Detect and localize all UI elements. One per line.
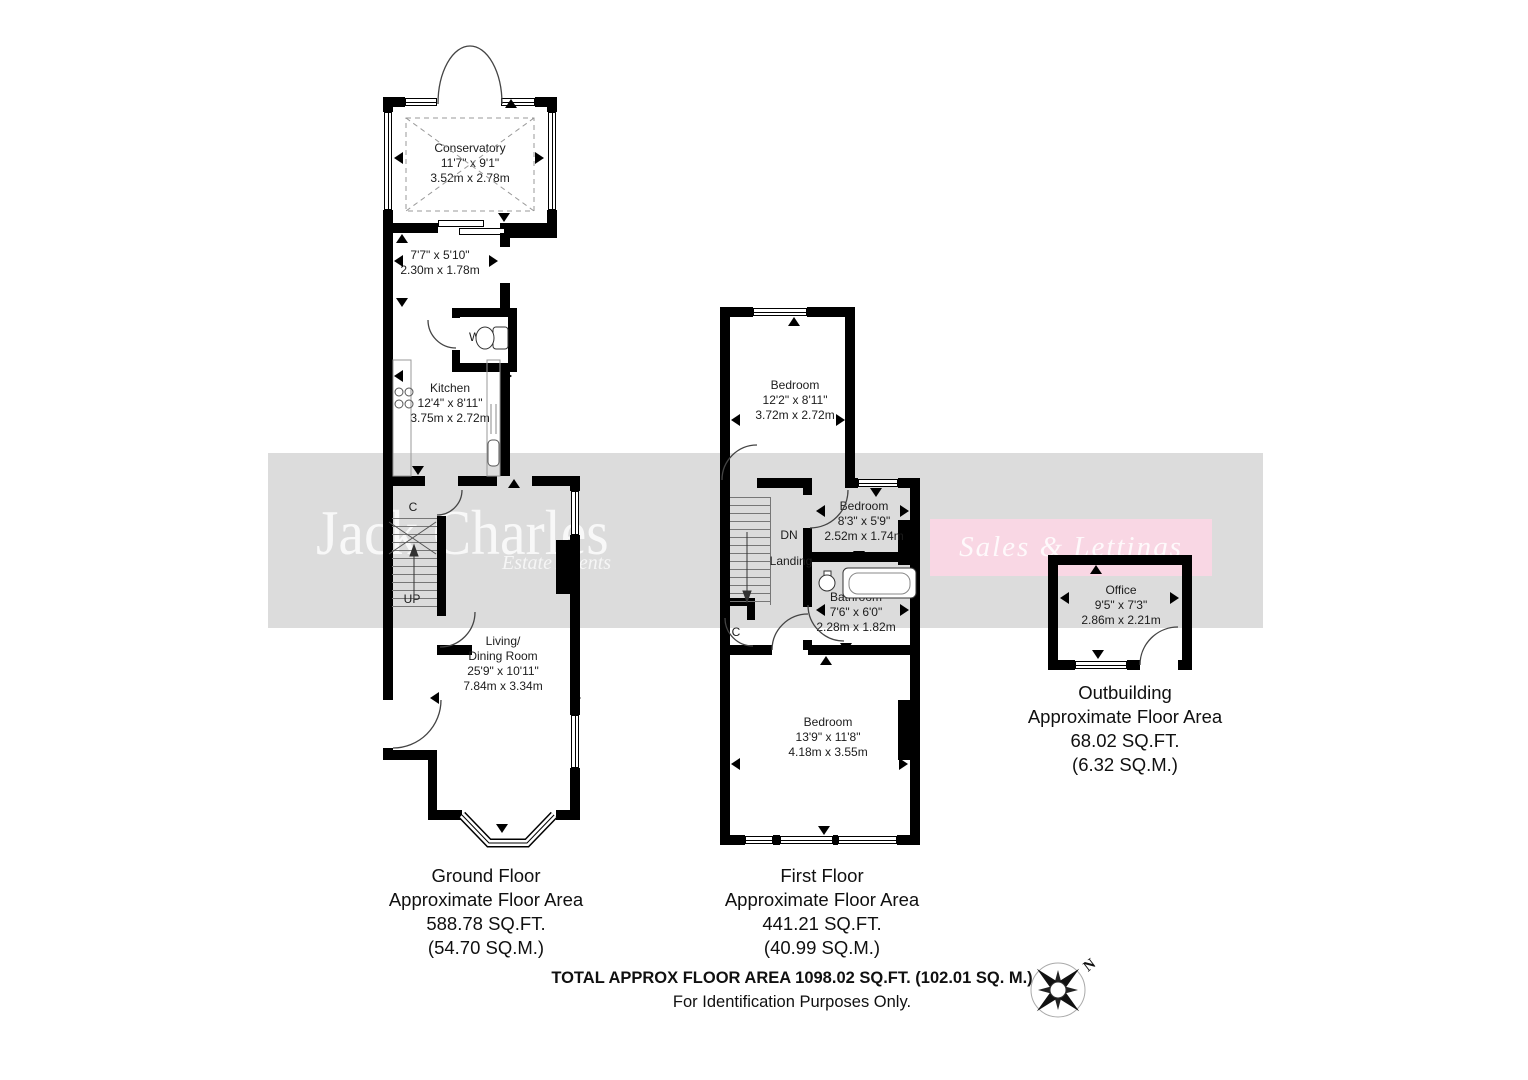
compass-rose: N: [1031, 956, 1099, 1017]
opening-marker: [489, 255, 498, 267]
opening-marker: [840, 643, 852, 652]
opening-marker: [816, 505, 825, 517]
wall: [910, 478, 920, 520]
opening-marker: [900, 505, 909, 517]
opening-marker: [498, 213, 510, 222]
window: [858, 479, 898, 487]
door-arc: [1140, 627, 1178, 665]
opening-marker: [731, 414, 740, 426]
wall: [910, 760, 920, 845]
wall: [570, 768, 580, 820]
wall: [845, 478, 858, 488]
compass-north-label: N: [1081, 956, 1100, 975]
opening-marker: [496, 824, 508, 833]
wall: [500, 233, 510, 247]
opening-marker: [394, 255, 403, 267]
opening-marker: [1092, 650, 1104, 659]
opening-marker: [508, 479, 520, 488]
opening-marker: [430, 692, 439, 704]
wall: [910, 565, 920, 700]
wall: [500, 283, 510, 308]
opening-marker: [853, 551, 865, 560]
wall: [428, 810, 462, 820]
door-arc: [393, 700, 441, 748]
opening-marker: [731, 758, 740, 770]
opening-marker: [1170, 592, 1179, 604]
ground-floor-caption: Ground Floor Approximate Floor Area 588.…: [389, 864, 583, 960]
wall: [383, 476, 425, 486]
opening-marker: [535, 152, 544, 164]
first-floor-caption: First Floor Approximate Floor Area 441.2…: [725, 864, 919, 960]
opening-marker: [870, 488, 882, 497]
wall: [720, 645, 772, 655]
floorplan-page: Sales & Lettings Jack Charles Estate Age…: [0, 0, 1528, 1080]
wall: [1048, 660, 1075, 670]
wall: [897, 835, 920, 845]
room-label-conservatory: Conservatory 11'7" x 9'1" 3.52m x 2.78m: [430, 141, 509, 186]
room-label-office: Office 9'5" x 7'3" 2.86m x 2.21m: [1081, 583, 1160, 628]
wall: [1048, 555, 1058, 670]
window: [753, 308, 807, 316]
window: [780, 836, 833, 844]
opening-marker: [412, 466, 424, 475]
stairs-dn-label: DN: [780, 528, 797, 542]
room-label-bedroom-middle: Bedroom 8'3" x 5'9" 2.52m x 1.74m: [824, 499, 903, 544]
door-arc: [428, 320, 456, 348]
cupboard-label: C: [732, 625, 741, 639]
opening-marker: [788, 317, 800, 326]
wall: [803, 488, 812, 495]
window: [405, 98, 437, 106]
room-label-kitchen: Kitchen 12'4" x 8'11" 3.75m x 2.72m: [410, 381, 489, 426]
wall: [458, 476, 497, 486]
chimney-breast: [898, 700, 920, 760]
wall: [1048, 555, 1192, 565]
staircase: [730, 497, 770, 605]
french-doors: [438, 46, 502, 104]
opening-marker: [396, 234, 408, 243]
opening-marker: [394, 370, 403, 382]
sales-lettings-banner: Sales & Lettings: [930, 519, 1212, 576]
room-label-wc: WC: [469, 330, 489, 344]
landing-label: Landing: [770, 554, 813, 568]
wall: [1182, 555, 1192, 670]
patio-door: [438, 220, 484, 227]
patio-door: [459, 228, 505, 235]
opening-marker: [836, 414, 845, 426]
wall: [757, 478, 812, 488]
room-label-hall: 7'7" x 5'10" 2.30m x 1.78m: [400, 248, 479, 278]
wall: [808, 645, 920, 655]
stair-edge: [770, 497, 771, 605]
cupboard-label: C: [409, 500, 418, 514]
wall: [570, 476, 580, 491]
wall: [383, 223, 393, 700]
stairs-up-label: UP: [404, 592, 421, 606]
wall: [720, 835, 745, 845]
window: [745, 836, 773, 844]
wall: [773, 835, 780, 845]
window: [571, 491, 579, 535]
opening-marker: [394, 152, 403, 164]
window: [838, 836, 897, 844]
wall: [1127, 660, 1140, 670]
room-label-bathroom: Bathroom 7'6" x 6'0" 2.28m x 1.82m: [816, 590, 895, 635]
wall: [500, 372, 510, 476]
opening-marker: [503, 370, 512, 382]
banner-text: Sales & Lettings: [930, 519, 1212, 576]
opening-marker: [396, 298, 408, 307]
wall: [845, 307, 855, 480]
window: [548, 112, 556, 210]
opening-marker: [820, 656, 832, 665]
opening-marker: [1060, 592, 1069, 604]
wall: [383, 97, 393, 112]
opening-marker: [816, 604, 825, 616]
bay-window: [462, 815, 554, 843]
wall: [437, 516, 446, 616]
wall: [452, 308, 460, 318]
opening-marker: [572, 692, 581, 704]
chimney-breast: [556, 540, 580, 594]
wall: [803, 562, 812, 607]
window: [571, 715, 579, 768]
opening-marker: [1090, 565, 1102, 574]
window: [1075, 661, 1127, 669]
room-label-bedroom-front: Bedroom 13'9" x 11'8" 4.18m x 3.55m: [788, 715, 867, 760]
wall: [720, 307, 730, 845]
opening-marker: [818, 826, 830, 835]
opening-marker: [899, 758, 908, 770]
wall: [452, 350, 460, 372]
room-label-bedroom-rear: Bedroom 12'2" x 8'11" 3.72m x 2.72m: [755, 378, 834, 423]
window: [384, 112, 392, 210]
opening-marker: [900, 604, 909, 616]
wall: [1178, 660, 1192, 670]
wall: [547, 97, 557, 112]
room-label-living-dining: Living/ Dining Room 25'9" x 10'11" 7.84m…: [463, 634, 542, 694]
opening-marker: [505, 99, 517, 108]
outbuilding-caption: Outbuilding Approximate Floor Area 68.02…: [1028, 681, 1222, 777]
total-area-footer: TOTAL APPROX FLOOR AREA 1098.02 SQ.FT. (…: [551, 966, 1032, 1014]
